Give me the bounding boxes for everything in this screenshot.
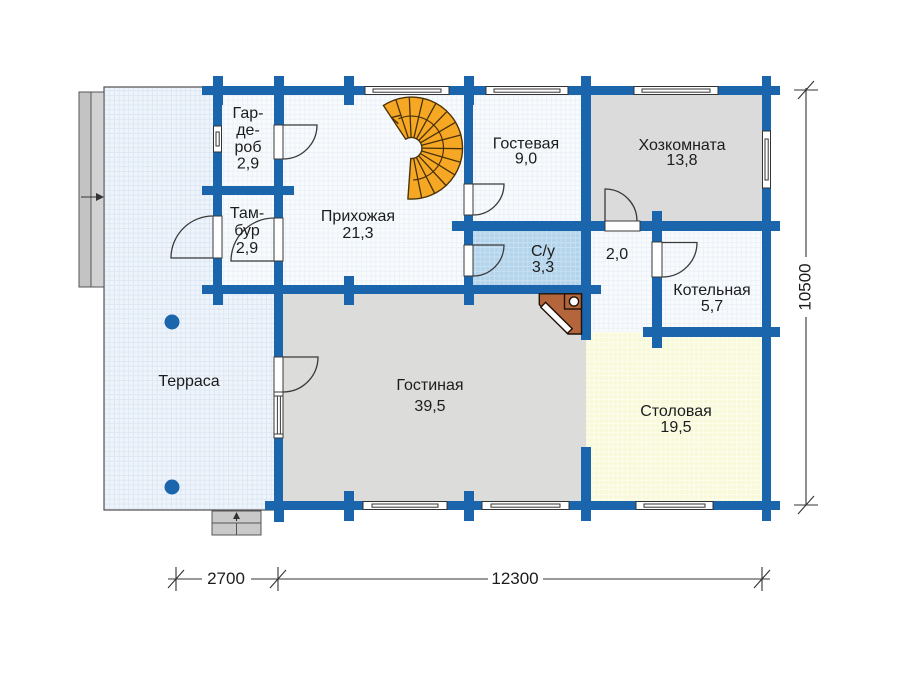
svg-text:9,0: 9,0 [515, 151, 537, 168]
svg-text:С/у: С/у [531, 243, 555, 260]
svg-text:2700: 2700 [207, 569, 245, 588]
svg-text:роб: роб [235, 139, 262, 156]
svg-text:13,8: 13,8 [666, 152, 697, 169]
svg-text:Гостиная: Гостиная [396, 377, 463, 394]
svg-text:5,7: 5,7 [701, 298, 723, 315]
svg-text:бур: бур [234, 223, 260, 240]
svg-text:10500: 10500 [795, 263, 814, 310]
svg-text:2,9: 2,9 [236, 240, 258, 257]
svg-text:Прихожая: Прихожая [321, 208, 395, 225]
svg-text:Котельная: Котельная [673, 282, 750, 299]
svg-text:Столовая: Столовая [640, 403, 712, 420]
svg-text:2,9: 2,9 [237, 156, 259, 173]
svg-text:2,0: 2,0 [606, 246, 628, 263]
svg-text:39,5: 39,5 [414, 398, 445, 415]
svg-text:де-: де- [236, 122, 260, 139]
svg-text:Терраса: Терраса [158, 373, 219, 390]
svg-text:Гар-: Гар- [233, 105, 264, 122]
svg-text:3,3: 3,3 [532, 259, 554, 276]
svg-text:21,3: 21,3 [342, 225, 373, 242]
svg-text:Там-: Там- [230, 205, 264, 222]
svg-text:19,5: 19,5 [660, 419, 691, 436]
svg-text:12300: 12300 [491, 569, 538, 588]
